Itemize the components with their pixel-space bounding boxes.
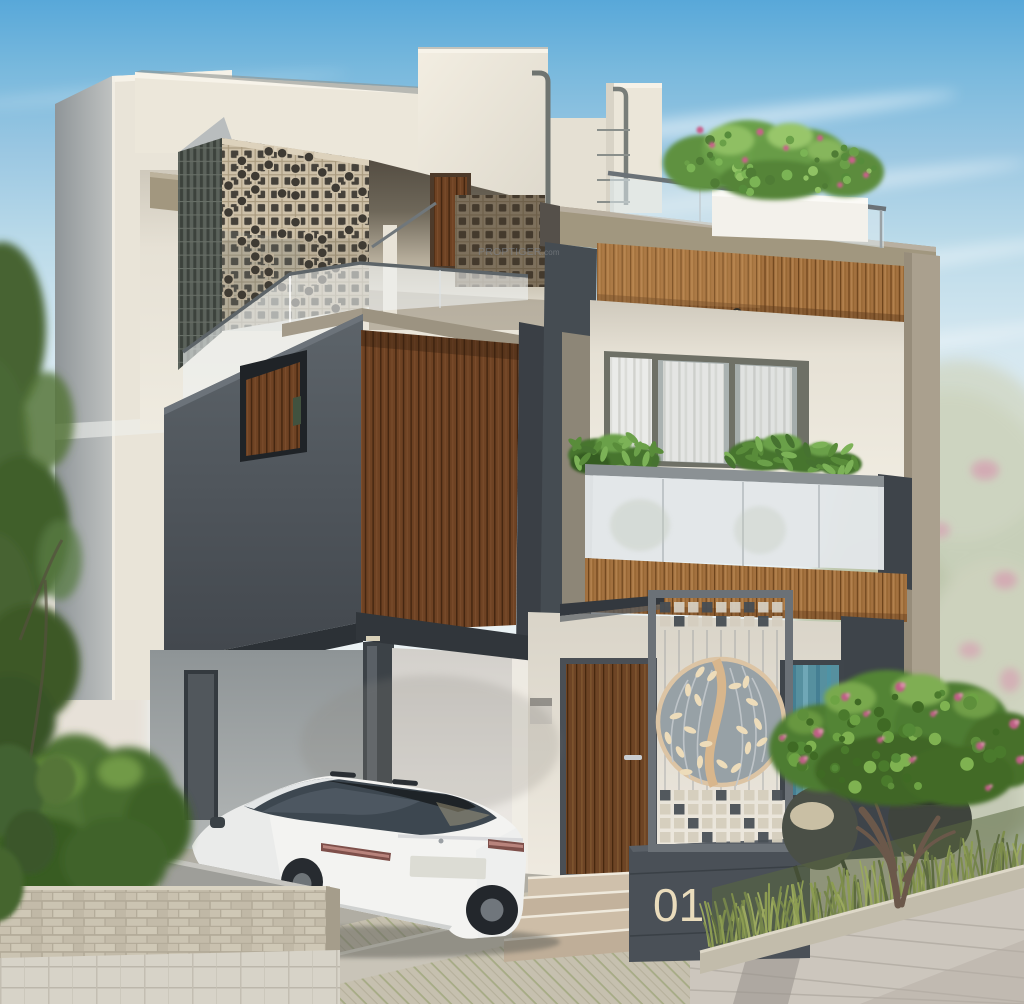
svg-text:01: 01: [653, 879, 704, 931]
svg-text:PROPTIGER.com: PROPTIGER.com: [478, 246, 560, 258]
